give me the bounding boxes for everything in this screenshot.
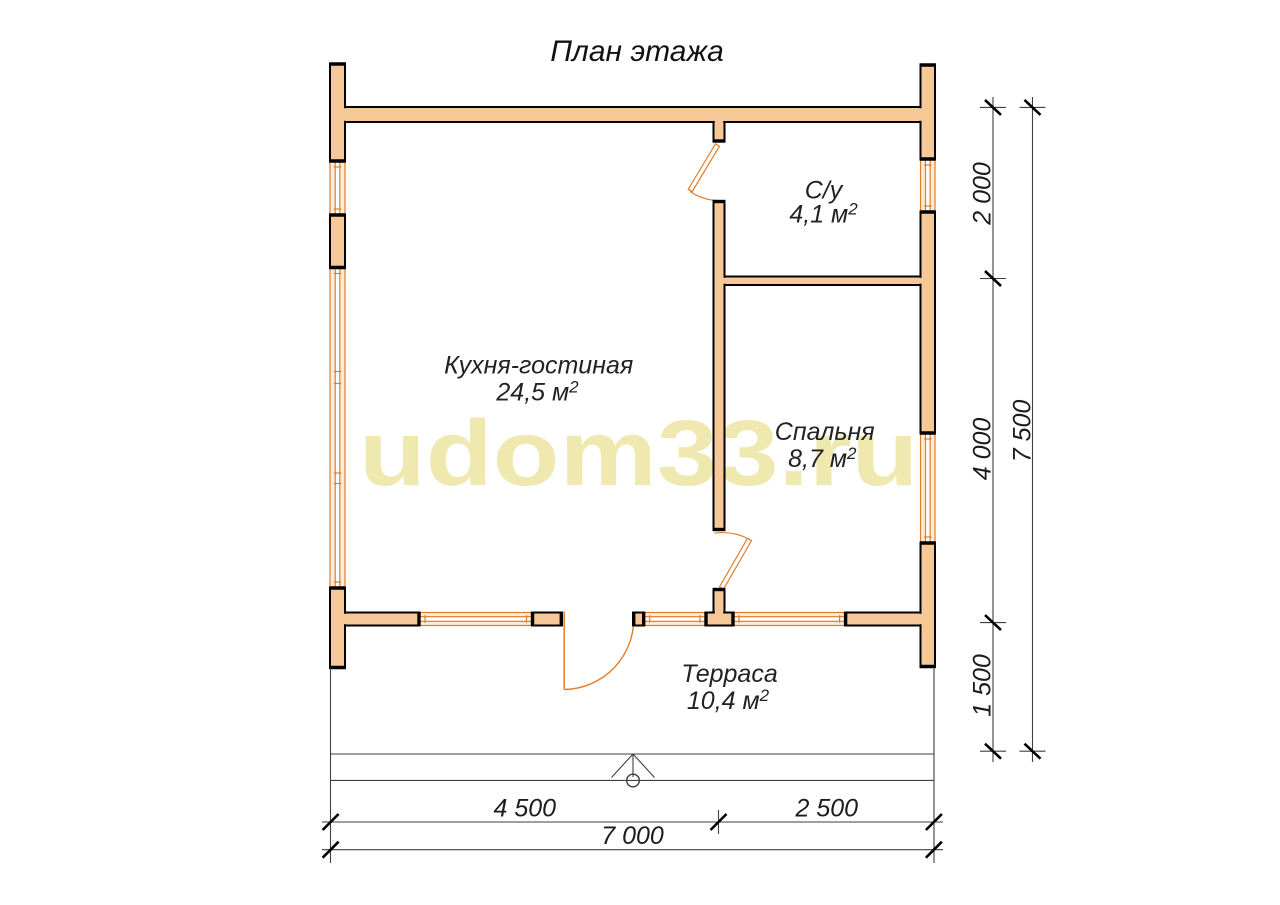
svg-text:План этажа: План этажа [550,35,724,68]
svg-text:4 500: 4 500 [494,795,557,823]
svg-text:10,4 м2: 10,4 м2 [687,686,770,715]
svg-text:2 500: 2 500 [795,795,859,823]
svg-text:1 500: 1 500 [969,654,997,717]
svg-text:7 500: 7 500 [1009,400,1037,463]
svg-text:7 000: 7 000 [601,822,664,850]
svg-text:Терраса: Терраса [681,660,778,688]
svg-text:24,5 м2: 24,5 м2 [495,377,579,406]
svg-text:2 000: 2 000 [969,162,997,226]
svg-text:4 000: 4 000 [969,418,997,481]
svg-text:4,1 м2: 4,1 м2 [789,199,858,228]
svg-text:Кухня-гостиная: Кухня-гостиная [444,352,633,380]
svg-text:8,7 м2: 8,7 м2 [788,444,857,473]
svg-text:Спальня: Спальня [775,418,875,446]
